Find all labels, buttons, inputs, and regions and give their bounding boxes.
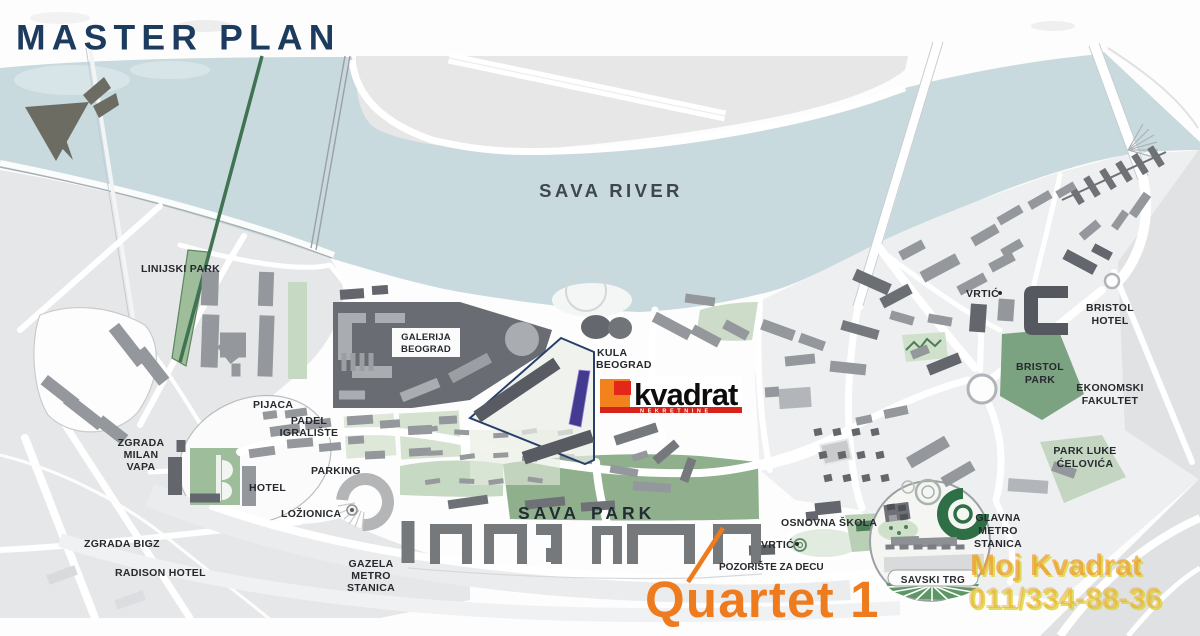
svg-text:HOTEL: HOTEL xyxy=(1091,315,1128,327)
svg-text:011/334-88-36: 011/334-88-36 xyxy=(968,582,1162,615)
svg-text:Moj Kvadrat: Moj Kvadrat xyxy=(970,549,1142,582)
svg-text:METRO: METRO xyxy=(978,525,1017,537)
svg-text:METRO: METRO xyxy=(351,570,390,582)
svg-text:BEOGRAD: BEOGRAD xyxy=(401,344,451,355)
svg-text:Quartet 1: Quartet 1 xyxy=(645,571,880,628)
svg-text:MILAN: MILAN xyxy=(124,449,159,461)
svg-text:LINIJSKI PARK: LINIJSKI PARK xyxy=(141,263,220,275)
svg-text:PARK: PARK xyxy=(1025,374,1055,386)
svg-text:RADISON HOTEL: RADISON HOTEL xyxy=(115,567,206,579)
svg-text:LOŽIONICA: LOŽIONICA xyxy=(281,507,342,520)
svg-text:KULA: KULA xyxy=(597,347,627,359)
svg-text:SAVA: SAVA xyxy=(518,503,580,523)
svg-text:VAPA: VAPA xyxy=(127,461,156,473)
svg-text:PIJACA: PIJACA xyxy=(253,399,293,411)
svg-text:OSNOVNA ŠKOLA: OSNOVNA ŠKOLA xyxy=(781,516,877,529)
svg-text:BEOGRAD: BEOGRAD xyxy=(596,359,652,371)
svg-text:IGRALIŠTE: IGRALIŠTE xyxy=(280,426,339,439)
svg-text:GAZELA: GAZELA xyxy=(349,558,394,570)
svg-text:MASTER PLAN: MASTER PLAN xyxy=(16,18,341,58)
svg-text:ZGRADA: ZGRADA xyxy=(118,437,165,449)
svg-text:ZGRADA BIGZ: ZGRADA BIGZ xyxy=(84,538,160,550)
svg-text:NEKRETNINE: NEKRETNINE xyxy=(640,408,712,414)
svg-text:EKONOMSKI: EKONOMSKI xyxy=(1076,382,1143,394)
svg-text:VRTIĆ: VRTIĆ xyxy=(966,287,999,300)
svg-text:VRTIĆ: VRTIĆ xyxy=(761,538,794,551)
svg-text:SAVSKI TRG: SAVSKI TRG xyxy=(901,575,965,586)
svg-text:PARK: PARK xyxy=(591,503,655,523)
svg-text:SAVA RIVER: SAVA RIVER xyxy=(539,180,683,201)
svg-text:BRISTOL: BRISTOL xyxy=(1086,302,1134,314)
svg-text:BRISTOL: BRISTOL xyxy=(1016,361,1064,373)
svg-text:kvadrat: kvadrat xyxy=(634,377,738,412)
svg-text:PARK LUKE: PARK LUKE xyxy=(1053,445,1116,457)
svg-text:ĆELOVIĆA: ĆELOVIĆA xyxy=(1057,457,1114,470)
svg-text:STANICA: STANICA xyxy=(347,582,395,594)
svg-text:FAKULTET: FAKULTET xyxy=(1082,395,1139,407)
svg-text:HOTEL: HOTEL xyxy=(249,482,286,494)
svg-text:PARKING: PARKING xyxy=(311,465,361,477)
svg-text:GLAVNA: GLAVNA xyxy=(975,512,1020,524)
svg-text:PADEL: PADEL xyxy=(291,415,328,427)
svg-text:GALERIJA: GALERIJA xyxy=(401,332,451,343)
